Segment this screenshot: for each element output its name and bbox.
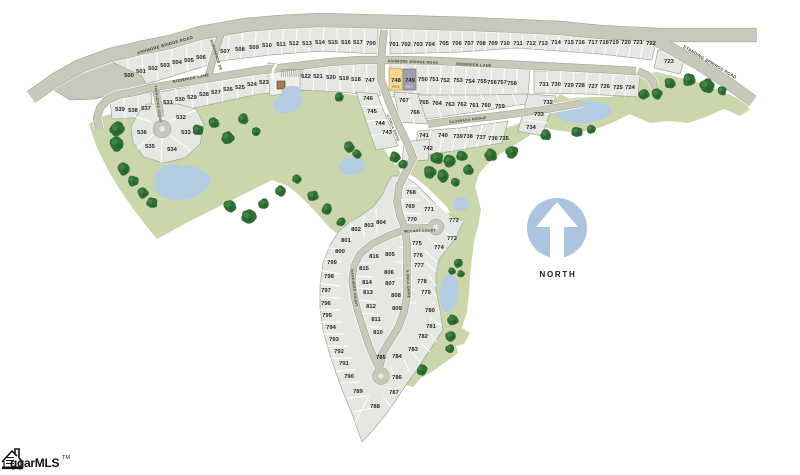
svg-text:793: 793 [329,337,339,343]
svg-text:772: 772 [449,218,459,224]
svg-text:703: 703 [413,42,423,48]
svg-text:760: 760 [481,103,491,109]
svg-text:517: 517 [353,40,363,46]
svg-text:788: 788 [370,404,380,410]
svg-text:527: 527 [211,90,221,96]
svg-text:700: 700 [366,41,376,47]
svg-text:742: 742 [423,146,433,152]
svg-text:774: 774 [434,245,444,251]
svg-text:770: 770 [407,217,417,223]
svg-text:780: 780 [425,308,435,314]
svg-text:723: 723 [664,59,674,65]
svg-text:799: 799 [327,260,337,266]
svg-text:816: 816 [369,254,379,260]
svg-text:787: 787 [389,390,399,396]
svg-text:538: 538 [128,108,138,114]
svg-text:717: 717 [588,40,598,46]
svg-text:539: 539 [115,107,125,113]
svg-text:746: 746 [363,96,373,102]
svg-text:NORTH: NORTH [540,270,577,279]
svg-text:SOLD: SOLD [392,86,400,89]
svg-text:501: 501 [136,69,146,75]
svg-text:706: 706 [452,41,462,47]
svg-text:786: 786 [392,375,402,381]
svg-text:765: 765 [419,100,429,106]
svg-text:755: 755 [477,79,487,85]
svg-text:741: 741 [419,133,429,139]
svg-text:739: 739 [453,134,463,140]
svg-text:707: 707 [464,41,474,47]
svg-text:516: 516 [341,40,351,46]
svg-text:728: 728 [575,83,585,89]
svg-text:752: 752 [440,78,450,84]
svg-text:510: 510 [262,43,272,49]
svg-text:792: 792 [334,349,344,355]
svg-text:783: 783 [408,347,418,353]
svg-text:705: 705 [439,41,449,47]
svg-text:768: 768 [406,190,416,196]
svg-text:731: 731 [539,82,549,88]
svg-text:815: 815 [359,266,369,272]
svg-text:738: 738 [463,134,473,140]
svg-text:526: 526 [223,87,233,93]
svg-text:795: 795 [322,313,332,319]
svg-text:743: 743 [382,130,392,136]
svg-text:523: 523 [259,80,269,86]
svg-text:809: 809 [392,306,402,312]
svg-text:727: 727 [588,84,598,90]
svg-text:507: 507 [220,49,230,55]
svg-text:805: 805 [385,252,395,258]
svg-text:745: 745 [367,109,377,115]
svg-text:514: 514 [315,40,325,46]
svg-text:TM: TM [62,455,70,461]
svg-text:522: 522 [301,74,311,80]
svg-text:762: 762 [457,102,467,108]
svg-text:781: 781 [426,324,436,330]
svg-text:701: 701 [389,42,399,48]
svg-text:814: 814 [362,280,372,286]
svg-text:749: 749 [405,78,415,84]
svg-text:797: 797 [321,288,331,294]
svg-text:748: 748 [391,78,401,84]
svg-text:782: 782 [418,334,428,340]
svg-text:733: 733 [534,112,544,118]
svg-text:803: 803 [364,223,374,229]
svg-text:530: 530 [175,97,185,103]
svg-text:725: 725 [613,85,623,91]
svg-text:737: 737 [476,135,486,141]
svg-text:521: 521 [313,74,323,80]
svg-text:508: 508 [235,47,245,53]
svg-text:784: 784 [392,354,402,360]
svg-text:769: 769 [405,204,415,210]
svg-text:810: 810 [373,330,383,336]
svg-text:SOLD: SOLD [405,86,413,89]
svg-text:790: 790 [344,374,354,380]
svg-text:535: 535 [145,144,155,150]
svg-text:759: 759 [495,104,505,110]
svg-text:505: 505 [184,58,194,64]
svg-text:524: 524 [247,82,257,88]
svg-text:807: 807 [385,281,395,287]
svg-text:511: 511 [276,42,286,48]
svg-text:506: 506 [196,55,206,61]
svg-text:767: 767 [399,98,409,104]
svg-text:721: 721 [633,40,643,46]
svg-text:729: 729 [564,83,574,89]
svg-text:791: 791 [339,361,349,367]
svg-text:536: 536 [137,130,147,136]
svg-text:518: 518 [351,77,361,83]
svg-text:500: 500 [124,73,134,79]
svg-text:533: 533 [181,130,191,136]
svg-text:764: 764 [432,101,442,107]
svg-text:710: 710 [500,41,510,47]
svg-text:519: 519 [339,76,349,82]
svg-text:713: 713 [538,41,548,47]
svg-text:513: 513 [302,41,312,47]
svg-text:802: 802 [351,227,361,233]
svg-text:719: 719 [609,40,619,46]
svg-text:811: 811 [371,317,381,323]
svg-text:537: 537 [141,106,151,112]
svg-text:711: 711 [513,41,523,47]
svg-text:794: 794 [326,325,336,331]
svg-text:806: 806 [384,270,394,276]
svg-text:750: 750 [418,77,428,83]
svg-text:756: 756 [487,80,497,86]
svg-text:757: 757 [497,80,507,86]
svg-text:761: 761 [469,103,479,109]
svg-text:766: 766 [410,110,420,116]
svg-text:504: 504 [172,60,182,66]
svg-text:ggarMLS: ggarMLS [10,456,60,470]
svg-text:532: 532 [176,115,186,121]
svg-text:777: 777 [414,263,424,269]
svg-text:534: 534 [167,147,177,153]
svg-text:778: 778 [417,279,427,285]
svg-text:712: 712 [526,41,536,47]
svg-text:804: 804 [376,220,386,226]
svg-text:734: 734 [526,125,536,131]
svg-text:773: 773 [447,236,457,242]
svg-text:512: 512 [289,41,299,47]
svg-text:704: 704 [425,42,435,48]
svg-text:709: 709 [488,41,498,47]
svg-text:812: 812 [366,304,376,310]
svg-text:714: 714 [551,40,561,46]
svg-text:785: 785 [376,355,386,361]
svg-text:515: 515 [328,40,338,46]
svg-text:716: 716 [575,40,585,46]
svg-text:758: 758 [507,81,517,87]
svg-text:740: 740 [438,133,448,139]
svg-text:771: 771 [424,207,434,213]
svg-text:754: 754 [465,79,475,85]
svg-text:520: 520 [326,75,336,81]
svg-text:736: 736 [488,136,498,142]
svg-text:525: 525 [235,85,245,91]
svg-text:808: 808 [391,293,401,299]
svg-text:502: 502 [148,66,158,72]
svg-text:528: 528 [199,92,209,98]
svg-text:800: 800 [335,249,345,255]
svg-text:715: 715 [564,40,574,46]
svg-text:798: 798 [324,274,334,280]
svg-text:813: 813 [363,290,373,296]
svg-text:503: 503 [160,63,170,69]
svg-text:801: 801 [341,238,351,244]
svg-text:702: 702 [401,42,411,48]
svg-text:744: 744 [375,121,385,127]
svg-text:726: 726 [600,84,610,90]
svg-text:724: 724 [625,85,635,91]
svg-text:751: 751 [429,77,439,83]
svg-text:747: 747 [365,78,375,84]
svg-text:531: 531 [163,100,173,106]
svg-text:708: 708 [476,41,486,47]
svg-text:735: 735 [499,136,509,142]
svg-text:529: 529 [187,95,197,101]
svg-text:796: 796 [321,301,331,307]
svg-text:718: 718 [599,40,609,46]
svg-text:732: 732 [543,100,553,106]
svg-text:730: 730 [551,82,561,88]
svg-text:753: 753 [453,78,463,84]
svg-text:720: 720 [621,40,631,46]
svg-text:763: 763 [445,102,455,108]
svg-text:789: 789 [353,389,363,395]
svg-text:722: 722 [646,41,656,47]
svg-text:509: 509 [249,45,259,51]
svg-text:776: 776 [413,253,423,259]
svg-text:779: 779 [421,290,431,296]
svg-text:775: 775 [412,241,422,247]
